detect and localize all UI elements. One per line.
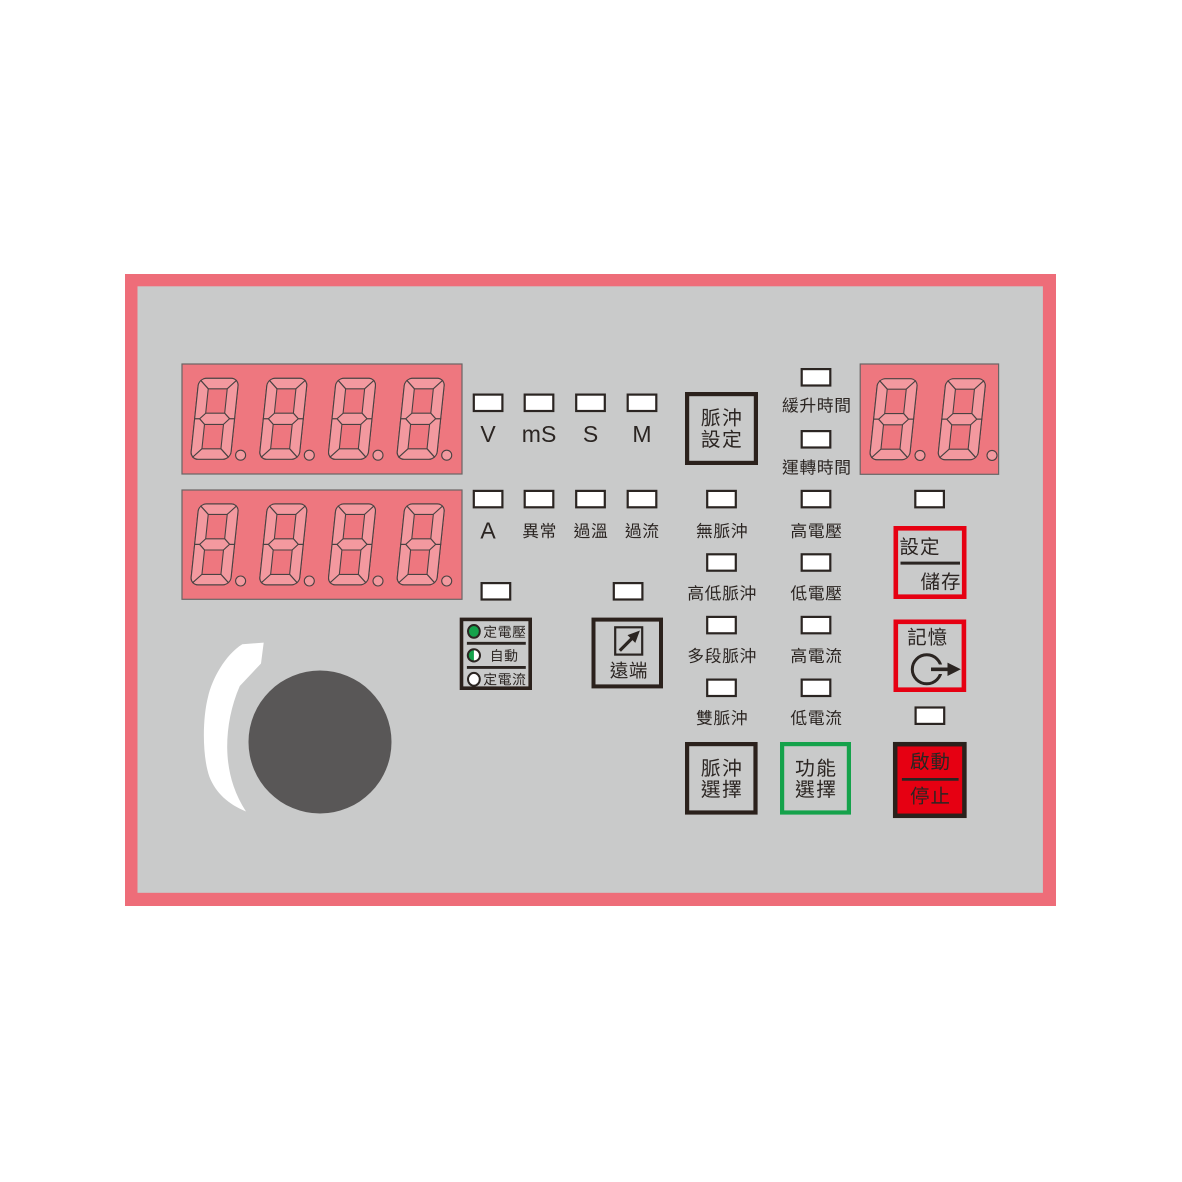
svg-text:V: V — [480, 421, 496, 447]
svg-text:A: A — [480, 517, 496, 543]
svg-text:S: S — [583, 421, 598, 447]
svg-text:M: M — [632, 421, 651, 447]
svg-text:mS: mS — [522, 421, 557, 447]
